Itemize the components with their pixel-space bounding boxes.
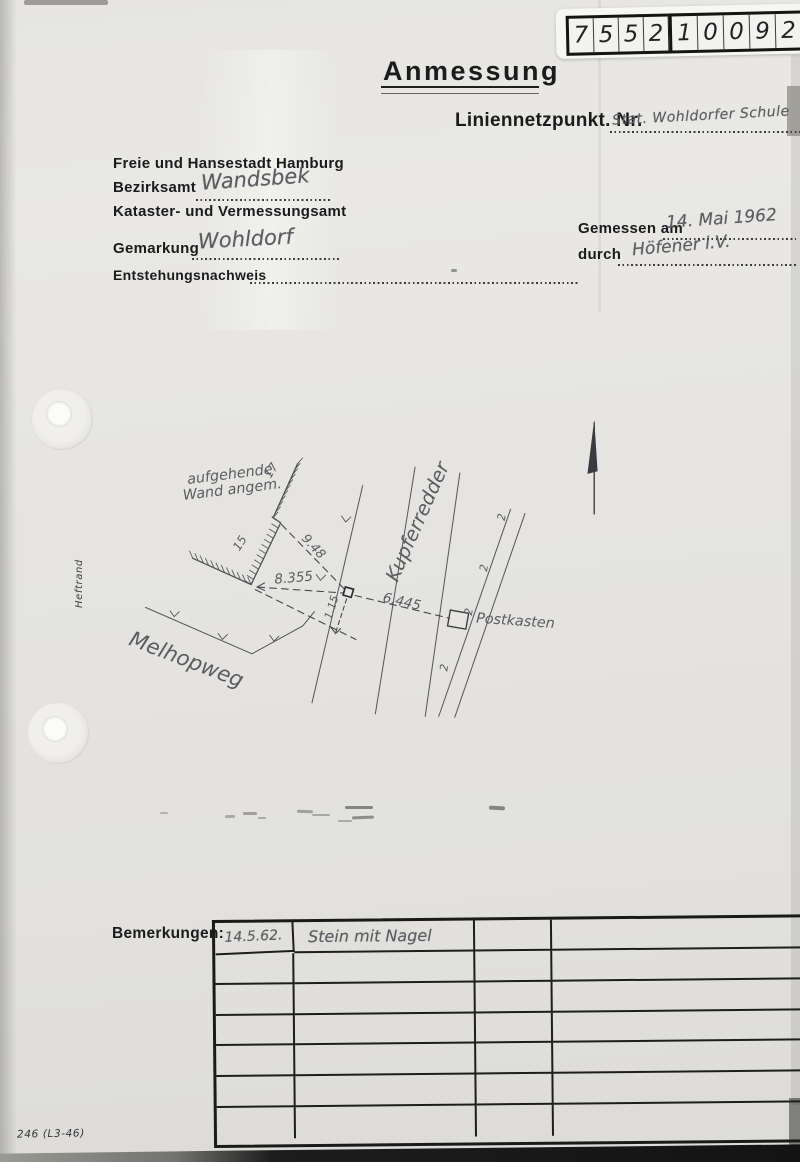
remarks-cell [295,982,476,1015]
remarks-cell [553,1071,800,1104]
punch-hole-bottom-center [42,716,68,742]
remarks-cell [215,953,294,985]
form-number: 246 (L3-46) [17,1127,85,1140]
direction-ticks [170,516,351,641]
street-name-bottom: Melhopweg [126,626,247,692]
measured-by-label: durch [578,246,621,263]
ink-speck [451,269,457,272]
id-digit-group-1: 7 5 5 2 [566,13,672,55]
street-name-main: Kupferredder [381,458,455,585]
dimension-right: 6.445 [381,590,422,614]
id-digit: 1 [672,16,699,51]
remarks-cell [476,1074,553,1106]
gemarkung-value: Wohldorf [197,225,293,254]
survey-point-marker [343,587,353,597]
scanned-survey-form: 7 5 5 2 1 0 0 9 2 5 Anmessung Liniennetz… [0,0,800,1162]
measured-by-ruling [618,264,796,266]
authority-line-2: Kataster- und Vermessungsamt [113,203,346,220]
id-digit: 0 [698,15,725,50]
id-digit: 2 [644,17,669,52]
remarks-cell [216,1076,295,1108]
svg-text:2: 2 [462,607,476,616]
remarks-label: Bemerkungen: [112,925,224,943]
point-number-ruling [610,131,800,133]
remarks-cell [216,1046,295,1078]
remarks-cell [296,1106,477,1139]
id-digit: 9 [750,14,777,49]
id-digit-group-2: 1 0 0 9 2 5 [669,10,800,54]
remarks-cell [217,1107,296,1139]
measured-value: 14. Mai 1962 [665,205,777,233]
id-digit: 0 [724,15,751,50]
district-ruling [196,199,332,201]
remarks-cell [553,979,800,1012]
remarks-cell [477,1105,554,1137]
gemarkung-label: Gemarkung [113,240,199,257]
id-number-sticker: 7 5 5 2 1 0 0 9 2 5 [555,3,800,59]
punch-hole-top-center [46,401,72,427]
svg-text:2: 2 [477,563,491,572]
id-digit: 5 [594,18,620,53]
remarks-cell [552,917,800,950]
svg-text:2: 2 [437,663,451,672]
dimension-wall: 9.48 [299,531,329,562]
field-sketch: 2 2 2 2 aufgehende Wand angem. 17 15 9.4… [110,415,710,760]
remarks-cell [476,1043,553,1075]
remarks-cell [295,1075,476,1108]
point-number-value: Stat. Wohldorfer Schule [612,103,790,128]
remarks-cell: Stein mit Nagel [294,920,475,953]
id-digit: 7 [569,18,595,53]
title-underline [381,86,539,94]
remarks-cell: 14.5.62. [214,921,294,955]
top-edge-mark [24,0,108,5]
remarks-cell [475,951,552,983]
left-edge-shadow [0,0,17,1162]
dimension-offset: 1.15 [322,594,342,621]
remarks-cell [294,951,475,984]
gemarkung-ruling [192,258,340,260]
remarks-cell [295,1044,476,1077]
origin-ruling [250,282,580,284]
remarks-cell [553,1010,800,1043]
remarks-cell [554,1102,800,1135]
north-arrow-icon [587,420,597,515]
remarks-cell [552,948,800,981]
page-title: Anmessung [383,56,560,87]
remarks-cell [553,1041,800,1074]
remarks-cell [476,1012,553,1044]
remarks-table: 14.5.62. Stein mit Nagel [212,914,800,1148]
remarks-cell [216,984,295,1016]
id-digit: 5 [619,17,645,52]
remarks-cell [295,1013,476,1046]
remarks-cell [475,920,552,952]
remarks-cell [216,1015,295,1047]
district-label: Bezirksamt [113,179,196,196]
dimension-left: 8.355 [274,568,314,587]
margin-label: Heftrand [74,559,85,608]
svg-text:2: 2 [495,513,509,522]
postbox-label: Postkasten [476,611,556,632]
origin-label: Entstehungsnachweis [113,267,267,283]
wall-number-lower: 15 [230,533,250,553]
id-digit: 2 [776,14,800,49]
remarks-cell [476,981,553,1013]
